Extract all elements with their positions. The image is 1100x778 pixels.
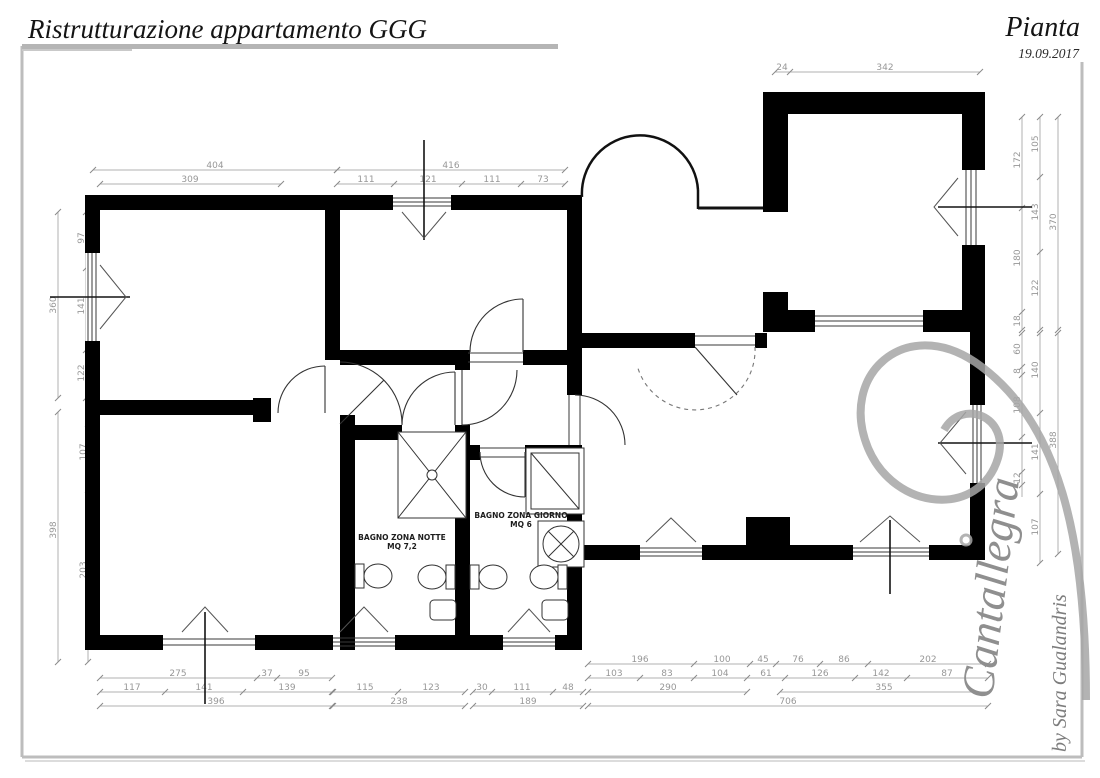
dimension-label: 309	[181, 175, 198, 185]
dim-chain: 290	[585, 683, 750, 695]
page-title: Ristrutturazione appartamento GGG	[28, 14, 427, 45]
dim-chain: 117141139	[97, 683, 335, 695]
washing-machine	[538, 521, 584, 567]
dimension-label: 103	[605, 669, 622, 679]
window-living-1	[640, 548, 702, 556]
dimension-label: 141	[1031, 443, 1041, 460]
drawing-sheet: 4043094161111211117324342275379511714113…	[0, 0, 1100, 778]
dimension-label: 142	[872, 669, 889, 679]
room-label: BAGNO ZONA NOTTE	[358, 533, 446, 542]
window-poles	[50, 140, 1032, 704]
dim-chain: 11112111173	[334, 175, 568, 187]
dim-chain: 103831046112614287	[585, 669, 991, 681]
window-living-2	[853, 548, 929, 556]
dimension-label: 95	[298, 669, 309, 679]
dimension-label: 360	[49, 296, 59, 313]
dim-chain: 416	[334, 161, 568, 173]
walls	[85, 92, 985, 650]
dimension-label: 404	[206, 161, 223, 171]
dimension-label: 126	[811, 669, 828, 679]
sheet-date: 19.09.2017	[1018, 46, 1079, 62]
threshold-living-left	[569, 395, 580, 445]
dimension-label: 189	[519, 697, 536, 707]
dimension-label: 61	[760, 669, 771, 679]
dimension-label: 122	[1031, 279, 1041, 296]
dimension-label: 342	[876, 63, 893, 73]
dim-chain: 238	[330, 697, 468, 709]
dimension-label: 18	[1013, 315, 1023, 327]
room-area-label: MQ 7,2	[387, 542, 417, 551]
dimension-label: 238	[390, 697, 407, 707]
shower-notte	[398, 432, 466, 518]
dimension-label: 370	[1049, 213, 1059, 230]
door-bottom-left	[163, 639, 255, 645]
dimension-label: 76	[792, 655, 804, 665]
window-internal	[815, 312, 923, 330]
dimension-label: 24	[776, 63, 788, 73]
dim-chain: 24342	[772, 63, 983, 75]
dim-chain: 189	[470, 697, 586, 709]
dimension-label: 121	[419, 175, 436, 185]
threshold-bagno-giorno	[480, 448, 525, 457]
dimension-label: 139	[278, 683, 295, 693]
wc-2	[418, 565, 456, 620]
dim-chain: 404	[90, 161, 340, 173]
signature-byline: by Sara Gualandris	[1049, 594, 1071, 752]
dim-chain: 360	[49, 209, 61, 401]
dimension-label: 111	[513, 683, 530, 693]
dim-chain: 2753795	[97, 669, 335, 681]
dimension-label: 123	[422, 683, 439, 693]
shower-giorno	[526, 448, 584, 514]
apse-arch-wall	[582, 135, 763, 209]
floor-plan-canvas: 4043094161111211117324342275379511714113…	[0, 0, 1100, 778]
dimension-label: 73	[537, 175, 548, 185]
dimension-label: 275	[169, 669, 186, 679]
room-label: BAGNO ZONA GIORNO	[474, 511, 567, 520]
dimension-label: 416	[442, 161, 459, 171]
dim-chain: 3011148	[470, 683, 586, 695]
dimension-label: 172	[1013, 151, 1023, 168]
dimension-label: 398	[49, 521, 59, 538]
wc-4	[530, 565, 568, 620]
dimension-label: 141	[195, 683, 212, 693]
dimension-label: 60	[1013, 343, 1023, 355]
window-bottom-2	[503, 638, 555, 646]
dimension-label: 111	[483, 175, 500, 185]
dimension-label: 706	[779, 697, 796, 707]
dim-chain: 396	[97, 697, 335, 709]
dim-chain: 706	[585, 697, 991, 709]
dim-chain: 398	[49, 409, 61, 665]
dimension-label: 141	[77, 297, 87, 314]
dimension-label: 180	[1013, 249, 1023, 266]
dimension-label: 202	[919, 655, 936, 665]
dimension-label: 45	[757, 655, 768, 665]
dim-chain: 309	[97, 175, 284, 187]
dimension-label: 86	[838, 655, 850, 665]
dimension-label: 115	[356, 683, 373, 693]
dimension-label: 87	[941, 669, 952, 679]
dim-chain: 370	[1049, 114, 1061, 333]
dimension-label: 396	[207, 697, 224, 707]
room-area-label: MQ 6	[510, 520, 532, 529]
dimension-label: 104	[711, 669, 728, 679]
dimension-label: 37	[261, 669, 272, 679]
dimension-label: 48	[562, 683, 574, 693]
title-underline-shadow	[22, 49, 132, 51]
dimension-label: 100	[713, 655, 730, 665]
window-top	[393, 196, 451, 209]
sheet-name: Pianta	[1005, 12, 1080, 44]
dimension-label: 355	[875, 683, 892, 693]
dimension-label: 30	[476, 683, 488, 693]
dim-chain: 105143122	[1031, 114, 1043, 333]
threshold-entry	[695, 336, 755, 345]
dimension-label: 111	[357, 175, 374, 185]
dimension-label: 196	[631, 655, 648, 665]
threshold-hall	[468, 353, 523, 362]
dimension-label: 107	[1031, 518, 1041, 535]
dimension-label: 8	[1013, 368, 1023, 374]
dimension-label: 117	[123, 683, 140, 693]
dimension-label: 140	[1031, 361, 1041, 378]
dimension-label: 388	[1049, 431, 1059, 448]
dimension-label: 143	[1031, 203, 1041, 220]
wc-1	[355, 564, 392, 588]
dimension-label: 290	[659, 683, 676, 693]
dim-chain: 17218018	[1013, 114, 1025, 333]
dim-chain: 115123	[330, 683, 468, 695]
dimension-label: 105	[1031, 135, 1041, 152]
wc-3	[470, 565, 507, 589]
signature-brand: Cantallegra	[951, 474, 1029, 701]
dim-chain: 196100457686202	[585, 655, 991, 667]
dimension-label: 83	[661, 669, 672, 679]
dim-chain: 388	[1049, 330, 1061, 557]
